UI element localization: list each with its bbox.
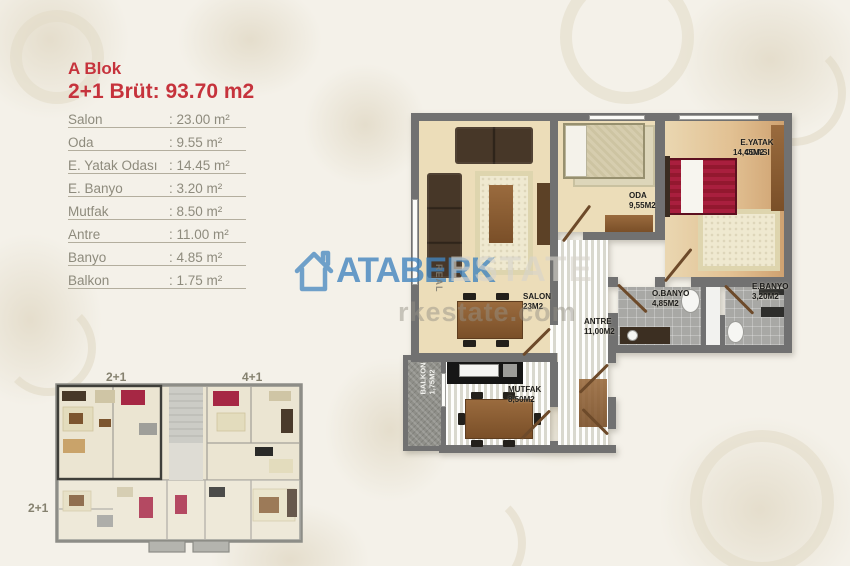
wall xyxy=(720,315,725,345)
wall xyxy=(655,113,665,240)
table-row: Oda: 9.55 m² xyxy=(68,128,246,151)
row-value: : 11.00 m² xyxy=(169,227,229,242)
row-value: : 4.85 m² xyxy=(169,250,222,265)
overview-label-top-right: 4+1 xyxy=(242,370,262,384)
wall xyxy=(403,355,408,451)
row-value: : 3.20 m² xyxy=(169,181,222,196)
row-value: : 14.45 m² xyxy=(169,158,230,173)
wall xyxy=(784,113,792,353)
wall xyxy=(550,113,558,325)
overview-label-mid-left: 2+1 xyxy=(28,501,48,515)
overview-plan-graphic xyxy=(55,383,303,555)
row-label: Oda xyxy=(68,135,169,150)
window xyxy=(589,115,645,120)
light-shaft xyxy=(706,287,720,345)
row-label: Banyo xyxy=(68,250,169,265)
row-value: : 23.00 m² xyxy=(169,112,230,127)
stove xyxy=(503,364,517,377)
table-row: E. Yatak Odası: 14.45 m² xyxy=(68,151,246,174)
table-row: Mutfak: 8.50 m² xyxy=(68,197,246,220)
row-value: : 9.55 m² xyxy=(169,135,222,150)
block-title: A Blok xyxy=(68,58,254,79)
window xyxy=(412,199,418,285)
wall xyxy=(550,362,558,407)
row-value: : 1.75 m² xyxy=(169,273,222,288)
wall xyxy=(655,277,665,287)
table-row: Antre: 11.00 m² xyxy=(68,220,246,243)
wall xyxy=(583,232,665,240)
wall xyxy=(403,446,441,451)
window xyxy=(679,115,759,120)
overview-label-top-left: 2+1 xyxy=(106,370,126,384)
room-label-salon: SALON 23M2 xyxy=(495,292,551,302)
balcony-door xyxy=(441,373,446,407)
area-table: Salon: 23.00 m² Oda: 9.55 m² E. Yatak Od… xyxy=(68,105,246,289)
overview-corridor xyxy=(169,443,203,480)
sofa xyxy=(455,127,533,164)
wall xyxy=(608,345,792,353)
wall xyxy=(550,441,558,453)
flyer-canvas: A Blok 2+1 Brüt: 93.70 m2 Salon: 23.00 m… xyxy=(0,0,850,566)
row-label: Mutfak xyxy=(68,204,169,219)
row-value: : 8.50 m² xyxy=(169,204,222,219)
oda-desk xyxy=(605,215,653,232)
chair xyxy=(503,440,515,447)
wall xyxy=(608,397,616,429)
row-label: Antre xyxy=(68,227,169,242)
bed-sheet xyxy=(681,160,703,213)
table-row: Balkon: 1.75 m² xyxy=(68,266,246,289)
overview-plan: 2+1 4+1 2+1 xyxy=(26,370,316,564)
chair xyxy=(496,340,509,347)
table-row: E. Banyo: 3.20 m² xyxy=(68,174,246,197)
house-icon xyxy=(294,248,334,294)
wall xyxy=(608,345,616,363)
table-row: Banyo: 4.85 m² xyxy=(68,243,246,266)
wall xyxy=(411,353,557,362)
plan-header: A Blok 2+1 Brüt: 93.70 m2 xyxy=(68,58,254,106)
sofa xyxy=(427,173,462,278)
headboard xyxy=(665,156,670,217)
row-label: Balkon xyxy=(68,273,169,288)
overview-balcony xyxy=(149,541,185,552)
chair xyxy=(471,440,483,447)
room-label-mutfak: MUTFAK 8,50M2 xyxy=(475,385,541,395)
overview-lower-fade xyxy=(58,480,301,540)
chair xyxy=(463,340,476,347)
master-rug xyxy=(698,209,780,271)
room-label-balkon: BALKON 1,75M2 xyxy=(419,365,428,425)
bath-counter xyxy=(761,307,784,317)
row-label: Salon xyxy=(68,112,169,127)
room-label-obanyo: O.BANYO 4,85M2 xyxy=(621,289,683,299)
kitchen-sink xyxy=(459,364,499,377)
row-label: E. Banyo xyxy=(68,181,169,196)
plan-summary: 2+1 Brüt: 93.70 m2 xyxy=(68,79,254,105)
dining-table xyxy=(457,301,523,339)
row-label: E. Yatak Odası xyxy=(68,158,169,173)
overview-balcony xyxy=(193,541,229,552)
tv-unit xyxy=(537,183,550,245)
table-row: Salon: 23.00 m² xyxy=(68,105,246,128)
kitchen-table xyxy=(465,399,533,439)
sink xyxy=(627,330,638,341)
main-floor-plan: SALON 23M2 ODA 9,55M2 E.YATAK ODASI 14,4… xyxy=(403,111,793,459)
room-label-ebanyo: E.BANYO 3,20M2 xyxy=(719,282,785,292)
chair xyxy=(463,293,476,300)
chair xyxy=(458,413,465,425)
room-label-antre: ANTRE 11,00M2 xyxy=(557,317,611,327)
antre-floor xyxy=(550,325,558,353)
toilet xyxy=(727,321,744,343)
room-label-eyatak: E.YATAK ODASI 14,45M2 xyxy=(685,138,781,148)
bed-pillow xyxy=(565,125,587,177)
coffee-table xyxy=(489,185,513,243)
wall xyxy=(439,445,616,453)
room-label-oda: ODA 9,55M2 xyxy=(603,191,655,201)
